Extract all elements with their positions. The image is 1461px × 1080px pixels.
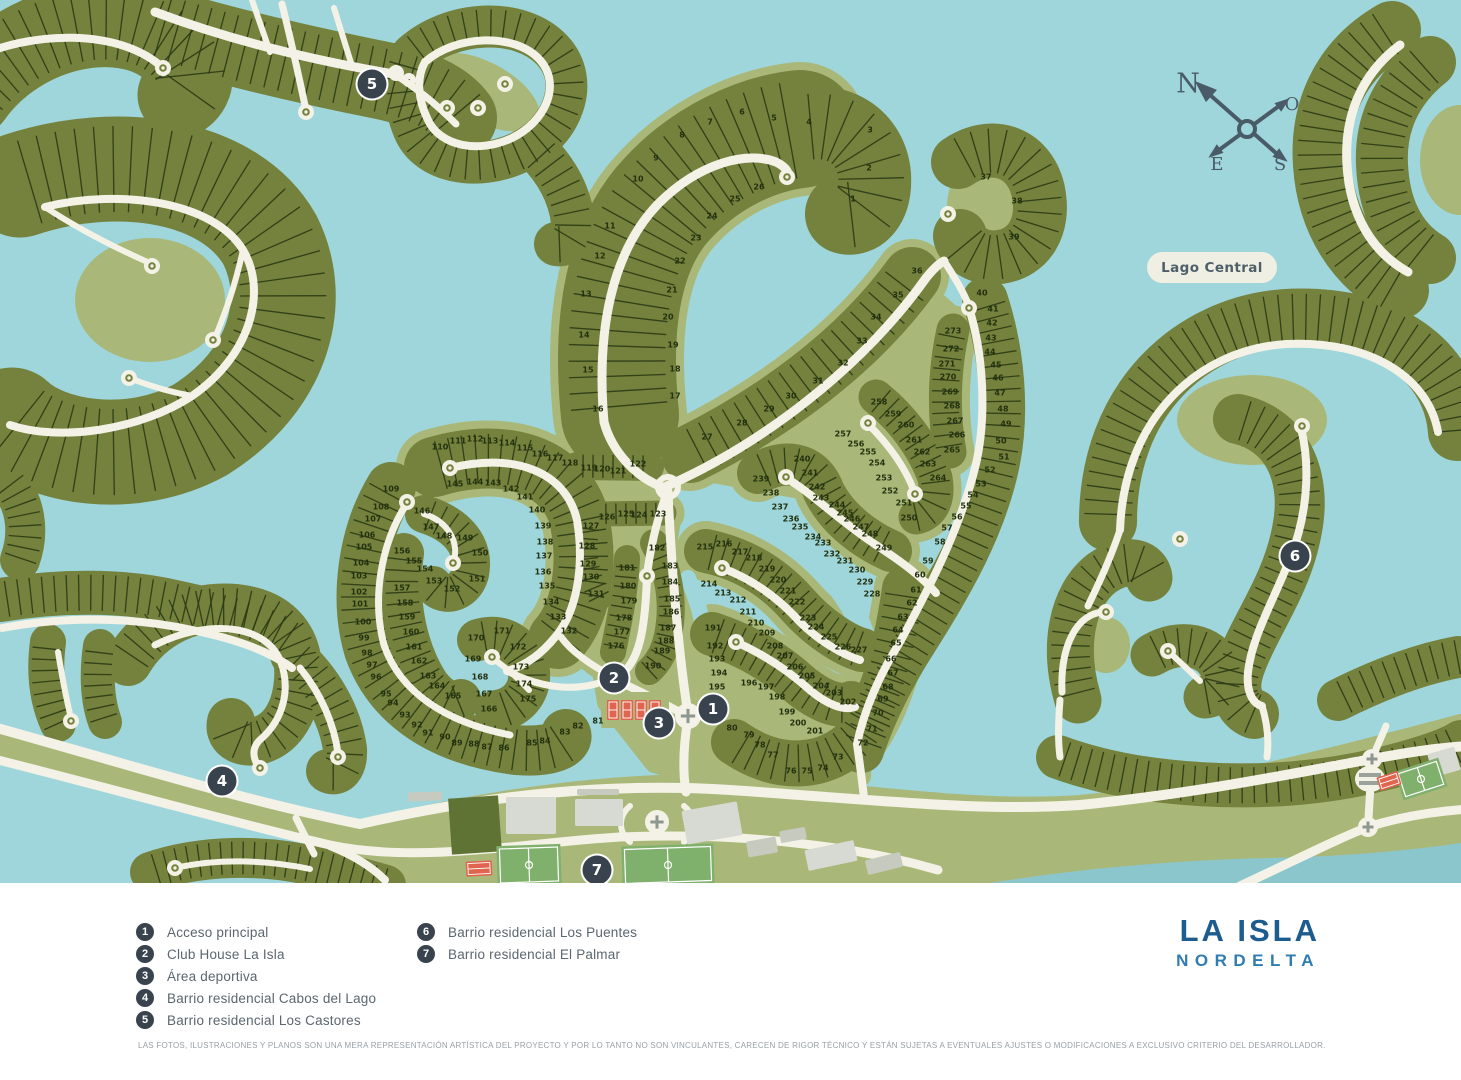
lot-number: 158 (397, 599, 414, 608)
lot-number: 241 (802, 469, 819, 478)
map: 1234567891011121314151617181920212223242… (0, 0, 1461, 883)
lot-number: 68 (882, 683, 894, 692)
lot-number: 43 (985, 334, 996, 343)
lot-number: 222 (789, 598, 806, 607)
screenshot-root: 1234567891011121314151617181920212223242… (0, 0, 1461, 1080)
lot-number: 192 (707, 642, 724, 651)
map-marker-6[interactable]: 6 (1279, 540, 1312, 573)
lot-number: 264 (930, 474, 947, 483)
lot-number: 224 (808, 623, 825, 632)
lot-number: 214 (701, 580, 718, 589)
lot-number: 149 (457, 534, 474, 543)
lot-number: 196 (741, 679, 758, 688)
lot-number: 77 (767, 751, 778, 760)
lot-number: 90 (439, 733, 451, 742)
map-marker-5[interactable]: 5 (356, 68, 389, 101)
lot-number: 201 (807, 727, 824, 736)
legend-item-3: 3Área deportiva (136, 965, 376, 987)
lot-number: 208 (767, 642, 784, 651)
lot-number: 104 (353, 559, 370, 568)
lot-number: 167 (476, 690, 493, 699)
svg-text:2: 2 (609, 669, 619, 687)
lot-number: 177 (614, 628, 631, 637)
sports-field (448, 795, 502, 854)
lot-number: 8 (679, 131, 685, 140)
lot-number: 106 (359, 531, 376, 540)
lot-number: 220 (770, 576, 787, 585)
building (408, 791, 442, 801)
lot-number: 61 (910, 586, 922, 595)
disclaimer-text: LAS FOTOS, ILUSTRACIONES Y PLANOS SON UN… (138, 1041, 1328, 1050)
lot-number: 166 (481, 705, 498, 714)
svg-text:6: 6 (1290, 547, 1300, 565)
lot-number: 181 (619, 564, 636, 573)
legend-marker-3: 3 (136, 967, 154, 985)
svg-text:7: 7 (592, 861, 602, 879)
lot-number: 206 (787, 663, 804, 672)
lot-number: 258 (871, 398, 888, 407)
lot-number: 1 (850, 195, 856, 204)
lot-number: 100 (355, 618, 372, 627)
lot-number: 253 (876, 474, 893, 483)
legend-marker-5: 5 (136, 1011, 154, 1029)
building (575, 799, 623, 826)
lot-number: 114 (499, 439, 516, 448)
lot-number: 6 (739, 108, 745, 117)
lot-number: 210 (748, 619, 765, 628)
lot-number: 30 (785, 392, 797, 401)
lot-number: 27 (701, 433, 712, 442)
lot-number: 108 (373, 503, 390, 512)
lot-number: 60 (914, 571, 926, 580)
lot-number: 44 (984, 348, 996, 357)
lot-number: 49 (1000, 420, 1012, 429)
lot-number: 215 (697, 543, 714, 552)
lot-number: 19 (667, 341, 679, 350)
lot-number: 82 (572, 722, 583, 731)
lot-number: 129 (580, 560, 597, 569)
lot-number: 33 (856, 337, 867, 346)
legend-label-1: Acceso principal (167, 925, 269, 940)
bottom-band: 1Acceso principal2Club House La Isla3Áre… (0, 883, 1461, 1080)
lot-number: 225 (821, 633, 838, 642)
lot-number: 40 (976, 289, 988, 298)
lot-number: 163 (420, 672, 437, 681)
legend-marker-4: 4 (136, 989, 154, 1007)
lot-number: 223 (800, 614, 817, 623)
lot-number: 93 (399, 711, 410, 720)
lot-number: 157 (394, 584, 411, 593)
lot-number: 195 (709, 683, 726, 692)
lot-number: 15 (582, 366, 594, 375)
legend-marker-2: 2 (136, 945, 154, 963)
lot-number: 21 (666, 286, 678, 295)
building (506, 797, 556, 834)
lot-number: 259 (885, 410, 902, 419)
lot-number: 122 (630, 460, 647, 469)
lot-number: 250 (901, 514, 918, 523)
lot-number: 26 (753, 183, 765, 192)
lot-number: 64 (892, 626, 904, 635)
lot-number: 125 (618, 510, 635, 519)
lot-number: 86 (498, 744, 510, 753)
lot-number: 126 (599, 513, 616, 522)
lot-number: 179 (621, 597, 638, 606)
lot-number: 13 (580, 290, 591, 299)
legend-label-6: Barrio residencial Los Puentes (448, 925, 637, 940)
lot-number: 53 (975, 480, 986, 489)
lot-number: 35 (892, 291, 904, 300)
map-marker-1[interactable]: 1 (697, 693, 730, 726)
lot-number: 25 (729, 195, 741, 204)
lot-number: 5 (771, 114, 777, 123)
lot-number: 105 (356, 543, 373, 552)
lot-number: 234 (805, 533, 822, 542)
lot-number: 94 (387, 699, 399, 708)
lot-number: 133 (550, 613, 567, 622)
lot-number: 254 (869, 459, 886, 468)
legend-marker-1: 1 (136, 923, 154, 941)
lot-number: 191 (705, 624, 722, 633)
lot-number: 70 (872, 709, 884, 718)
lot-number: 37 (980, 173, 991, 182)
lot-number: 144 (467, 478, 484, 487)
lot-number: 75 (801, 767, 813, 776)
lot-number: 55 (960, 502, 972, 511)
lot-number: 211 (740, 608, 757, 617)
legend-item-4: 4Barrio residencial Cabos del Lago (136, 987, 376, 1009)
lot-number: 102 (351, 588, 368, 597)
lot-number: 156 (394, 547, 411, 556)
lot-number: 52 (984, 466, 995, 475)
lot-number: 194 (711, 669, 728, 678)
lot-number: 91 (422, 729, 434, 738)
lot-number: 151 (469, 575, 486, 584)
lot-number: 59 (922, 557, 934, 566)
lot-number: 47 (994, 389, 1005, 398)
lot-number: 232 (824, 550, 841, 559)
lot-number: 168 (472, 673, 489, 682)
lot-number: 74 (817, 764, 829, 773)
lot-number: 190 (645, 662, 662, 671)
lot-number: 41 (987, 305, 999, 314)
lot-number: 67 (887, 669, 898, 678)
lot-number: 57 (941, 524, 952, 533)
lot-number: 176 (608, 642, 625, 651)
lot-number: 161 (406, 643, 423, 652)
lot-number: 118 (562, 459, 579, 468)
lot-number: 175 (520, 695, 537, 704)
svg-text:1: 1 (708, 700, 718, 718)
lot-number: 171 (494, 627, 511, 636)
lot-number: 111 (450, 437, 467, 446)
lot-number: 73 (832, 753, 843, 762)
lot-number: 261 (906, 436, 923, 445)
map-canvas: 1234567891011121314151617181920212223242… (0, 0, 1461, 883)
map-marker-2[interactable]: 2 (598, 662, 631, 695)
lot-number: 32 (837, 359, 848, 368)
lot-number: 243 (813, 494, 830, 503)
lot-number: 38 (1011, 197, 1023, 206)
lot-number: 103 (351, 572, 368, 581)
lot-number: 228 (864, 590, 881, 599)
lot-number: 95 (380, 690, 392, 699)
lot-number: 185 (664, 595, 681, 604)
legend-label-2: Club House La Isla (167, 947, 285, 962)
lot-number: 172 (510, 643, 527, 652)
legend-item-7: 7Barrio residencial El Palmar (417, 943, 637, 965)
lot-number: 236 (783, 515, 800, 524)
lot-number: 88 (468, 740, 480, 749)
lot-number: 187 (660, 624, 677, 633)
lot-number: 120 (594, 465, 611, 474)
lot-number: 4 (806, 118, 812, 127)
lot-number: 204 (813, 682, 830, 691)
lot-number: 263 (920, 460, 937, 469)
lot-number: 62 (906, 599, 917, 608)
lot-number: 218 (746, 554, 763, 563)
lot-number: 205 (799, 672, 816, 681)
lot-number: 34 (870, 313, 882, 322)
lot-number: 184 (662, 578, 679, 587)
lot-number: 140 (529, 506, 546, 515)
logo-line-2: NORDELTA (1176, 951, 1320, 971)
lot-number: 92 (411, 721, 422, 730)
lot-number: 48 (997, 405, 1009, 414)
lot-number: 271 (939, 360, 956, 369)
lot-number: 98 (361, 649, 373, 658)
lot-number: 155 (406, 557, 423, 566)
lot-number: 186 (663, 608, 680, 617)
lot-number: 143 (485, 479, 502, 488)
lot-number: 80 (726, 724, 738, 733)
lot-number: 17 (669, 392, 680, 401)
lot-number: 85 (526, 739, 538, 748)
lot-number: 159 (399, 613, 416, 622)
lot-number: 198 (769, 693, 786, 702)
lot-number: 14 (578, 331, 590, 340)
lot-number: 12 (594, 252, 605, 261)
lot-number: 9 (653, 154, 659, 163)
logo-line-1: LA ISLA (1176, 915, 1320, 948)
lot-number: 240 (794, 455, 811, 464)
lot-number: 56 (951, 513, 963, 522)
lot-number: 101 (352, 600, 369, 609)
lot-number: 146 (414, 507, 431, 516)
lake-label: Lago Central (1161, 260, 1263, 276)
lot-number: 135 (539, 582, 556, 591)
lot-number: 145 (447, 480, 464, 489)
lot-number: 137 (536, 552, 553, 561)
lot-number: 22 (674, 257, 685, 266)
lot-number: 255 (860, 448, 877, 457)
lot-number: 78 (754, 741, 766, 750)
lot-number: 130 (583, 573, 600, 582)
lot-number: 23 (690, 234, 701, 243)
lot-number: 113 (482, 437, 499, 446)
lot-number: 256 (848, 440, 865, 449)
lot-number: 128 (579, 542, 596, 551)
lot-number: 160 (403, 628, 420, 637)
svg-text:3: 3 (654, 714, 664, 732)
lot-number: 121 (610, 467, 627, 476)
lot-number: 39 (1008, 233, 1020, 242)
legend-item-1: 1Acceso principal (136, 921, 376, 943)
lot-number: 136 (535, 568, 552, 577)
lot-number: 170 (468, 634, 485, 643)
lot-number: 71 (866, 725, 878, 734)
legend-label-4: Barrio residencial Cabos del Lago (167, 991, 376, 1006)
lot-number: 216 (716, 540, 733, 549)
map-marker-3[interactable]: 3 (643, 707, 676, 740)
lot-number: 164 (429, 682, 446, 691)
lot-number: 226 (835, 643, 852, 652)
lot-number: 202 (840, 698, 857, 707)
lot-number: 221 (780, 587, 797, 596)
lot-number: 58 (934, 538, 946, 547)
lot-number: 63 (897, 613, 908, 622)
lot-number: 229 (857, 578, 874, 587)
lot-number: 81 (592, 717, 604, 726)
lot-number: 18 (669, 365, 681, 374)
lot-number: 76 (785, 767, 797, 776)
lot-number: 131 (588, 590, 605, 599)
lot-number: 72 (857, 739, 868, 748)
legend-label-7: Barrio residencial El Palmar (448, 947, 620, 962)
lot-number: 66 (885, 655, 897, 664)
lot-number: 7 (707, 118, 713, 127)
brand-logo: LA ISLA NORDELTA (1176, 915, 1320, 971)
lot-number: 138 (537, 538, 554, 547)
lot-number: 238 (763, 489, 780, 498)
lot-number: 11 (604, 222, 616, 231)
compass-letter: S (1274, 154, 1286, 175)
lot-number: 267 (947, 417, 964, 426)
lot-number: 249 (876, 544, 893, 553)
lot-number: 134 (543, 598, 560, 607)
lot-number: 268 (944, 402, 961, 411)
lot-number: 178 (616, 614, 633, 623)
lot-number: 42 (986, 319, 997, 328)
lot-number: 173 (513, 663, 530, 672)
lot-number: 51 (998, 453, 1010, 462)
lot-number: 110 (432, 443, 449, 452)
lot-number: 273 (945, 327, 962, 336)
lot-number: 36 (911, 267, 923, 276)
compass-letter: E (1210, 154, 1223, 175)
legend-label-5: Barrio residencial Los Castores (167, 1013, 361, 1028)
lot-number: 148 (436, 532, 453, 541)
lot-number: 139 (535, 522, 552, 531)
lot-number: 269 (942, 388, 959, 397)
lot-number: 28 (736, 419, 748, 428)
lot-number: 54 (967, 491, 979, 500)
legend-marker-6: 6 (417, 923, 435, 941)
lot-number: 16 (592, 405, 604, 414)
lot-number: 150 (472, 549, 489, 558)
lot-number: 188 (658, 637, 675, 646)
lot-number: 10 (632, 175, 644, 184)
lot-number: 239 (753, 475, 770, 484)
lot-number: 147 (423, 523, 440, 532)
legend-marker-7: 7 (417, 945, 435, 963)
lot-number: 107 (365, 515, 382, 524)
lot-number: 162 (411, 657, 428, 666)
lot-number: 260 (898, 421, 915, 430)
legend-label-3: Área deportiva (167, 969, 258, 984)
lot-number: 141 (517, 493, 534, 502)
lot-number: 199 (779, 708, 796, 717)
lot-number: 262 (914, 448, 931, 457)
lot-number: 24 (706, 212, 718, 221)
lot-number: 189 (654, 647, 671, 656)
lot-number: 266 (949, 431, 966, 440)
sports-field (621, 843, 714, 883)
lot-number: 251 (896, 499, 913, 508)
legend-item-5: 5Barrio residencial Los Castores (136, 1009, 376, 1031)
lot-number: 183 (662, 562, 679, 571)
lot-number: 31 (812, 377, 824, 386)
tennis-court (607, 700, 619, 720)
lot-number: 84 (539, 737, 551, 746)
lot-number: 165 (445, 692, 462, 701)
sports-field (496, 844, 561, 883)
lot-number: 209 (759, 629, 776, 638)
legend-column-2: 6Barrio residencial Los Puentes7Barrio r… (417, 921, 637, 965)
lot-number: 89 (451, 739, 463, 748)
lot-number: 83 (559, 728, 570, 737)
lot-number: 193 (709, 655, 726, 664)
lot-number: 272 (943, 345, 960, 354)
lot-number: 242 (809, 483, 826, 492)
lot-number: 3 (867, 126, 873, 135)
tennis-court (466, 860, 493, 876)
lot-number: 197 (758, 683, 775, 692)
lot-number: 180 (620, 582, 637, 591)
lot-number: 153 (426, 577, 443, 586)
compass-letter: O (1285, 94, 1300, 115)
lot-number: 169 (465, 655, 482, 664)
lot-number: 252 (882, 487, 899, 496)
lot-number: 142 (503, 485, 520, 494)
lot-number: 213 (715, 589, 732, 598)
lot-number: 87 (481, 743, 492, 752)
lot-number: 227 (851, 646, 868, 655)
lot-number: 182 (649, 544, 666, 553)
lot-number: 20 (662, 313, 674, 322)
lot-number: 127 (583, 522, 600, 531)
lot-number: 69 (877, 695, 889, 704)
lot-number: 45 (990, 361, 1002, 370)
legend-item-2: 2Club House La Isla (136, 943, 376, 965)
lot-number: 174 (516, 680, 533, 689)
lot-number: 200 (790, 719, 807, 728)
lot-number: 109 (383, 485, 400, 494)
lot-number: 2 (866, 164, 872, 173)
map-marker-4[interactable]: 4 (206, 765, 239, 798)
lot-number: 265 (944, 446, 961, 455)
lot-number: 257 (835, 430, 852, 439)
lot-number: 97 (366, 661, 377, 670)
lot-number: 79 (743, 731, 755, 740)
legend-item-6: 6Barrio residencial Los Puentes (417, 921, 637, 943)
lot-number: 152 (444, 585, 461, 594)
lot-number: 235 (792, 523, 809, 532)
lot-number: 207 (777, 652, 794, 661)
lot-number: 50 (995, 437, 1007, 446)
legend-column-1: 1Acceso principal2Club House La Isla3Áre… (136, 921, 376, 1031)
lot-number: 123 (650, 510, 667, 519)
